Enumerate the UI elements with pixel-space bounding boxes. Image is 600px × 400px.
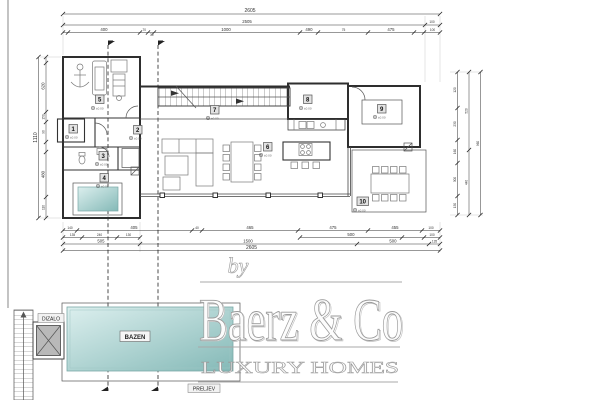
dim-top-total2: 2505 bbox=[242, 19, 252, 24]
stairs bbox=[158, 86, 290, 108]
dim-top-total: 2605 bbox=[244, 8, 255, 14]
svg-text:PRELJEV: PRELJEV bbox=[193, 387, 216, 393]
outdoor-stairs bbox=[14, 310, 33, 400]
dim-top-right: 100 bbox=[429, 20, 435, 24]
elevation-marker: ±0.00 bbox=[353, 208, 366, 212]
dim: 455 bbox=[391, 225, 399, 230]
floor-plan: 1 2 3 4 5 6 7 8 9 10 ±0.00 ±0.00 ±0.00 ±… bbox=[58, 57, 427, 218]
elevation-marker: ±0.00 bbox=[299, 106, 312, 110]
dining-table-indoor bbox=[223, 142, 261, 182]
svg-text:±0.00: ±0.00 bbox=[100, 162, 108, 166]
dim: 40 bbox=[195, 226, 199, 230]
dim: 120 bbox=[453, 87, 457, 93]
dim: 960 bbox=[476, 141, 480, 147]
dim: 500 bbox=[347, 232, 355, 237]
svg-text:±0.00: ±0.00 bbox=[211, 116, 219, 120]
room-label-8: 8 bbox=[304, 95, 313, 104]
elevation-marker: ±0.00 bbox=[373, 115, 386, 119]
dim: 440 bbox=[465, 180, 469, 186]
dim: 490 bbox=[305, 27, 313, 32]
dim: 300 bbox=[453, 177, 457, 183]
watermark: by Baerz & Co Baerz & Co LUXURY HOMES bbox=[198, 253, 404, 382]
elevation-marker: ±0.00 bbox=[206, 116, 219, 120]
dim: 505 bbox=[97, 239, 105, 244]
svg-text:±0.00: ±0.00 bbox=[378, 115, 386, 119]
dim: 475 bbox=[387, 27, 395, 32]
dim: 75 bbox=[342, 28, 346, 32]
sofa-group bbox=[162, 139, 213, 190]
svg-text:BAZEN: BAZEN bbox=[125, 335, 146, 341]
floor-plan-page: 2605 2505 100 400 70 30 1000 490 75 475 … bbox=[0, 0, 600, 400]
overflow-label: PRELJEV bbox=[188, 384, 220, 393]
room-label-6: 6 bbox=[264, 143, 273, 152]
dim: 30 bbox=[150, 33, 154, 37]
dim: 230 bbox=[453, 121, 457, 127]
svg-text:±0.00: ±0.00 bbox=[70, 135, 78, 139]
room-label-5: 5 bbox=[96, 95, 105, 104]
room-label-9: 9 bbox=[378, 105, 387, 114]
svg-text:±0.00: ±0.00 bbox=[304, 106, 312, 110]
dimension-lines-bottom: 140 405 40 465 475 455 100 135 240 130 5… bbox=[61, 225, 442, 253]
dim: 150 bbox=[453, 203, 457, 209]
elevation-marker: ±0.00 bbox=[259, 153, 272, 157]
svg-text:±0.00: ±0.00 bbox=[358, 208, 366, 212]
dim: 150 bbox=[42, 114, 46, 120]
dim: 465 bbox=[246, 225, 254, 230]
elevation-marker: ±0.00 bbox=[95, 162, 108, 166]
kitchen bbox=[283, 120, 345, 169]
dimension-lines-left: 1110 620 150 90 480 110 bbox=[33, 55, 48, 220]
room-label-1: 1 bbox=[69, 125, 78, 134]
dim: 110 bbox=[42, 205, 46, 210]
watermark-by: by bbox=[228, 253, 249, 278]
watermark-tagline: LUXURY HOMES bbox=[201, 358, 399, 377]
dim: 405 bbox=[130, 225, 138, 230]
dining-table-terrace bbox=[371, 167, 409, 202]
elevation-marker: ±0.00 bbox=[129, 136, 142, 140]
svg-text:±0.00: ±0.00 bbox=[101, 184, 109, 188]
dim: 480 bbox=[41, 170, 46, 178]
dim: 130 bbox=[126, 233, 132, 237]
dim: 475 bbox=[329, 225, 337, 230]
watermark-brand: Baerz & Co bbox=[199, 287, 403, 353]
dim: 100 bbox=[428, 226, 434, 230]
dim: 140 bbox=[67, 226, 73, 230]
gym-equipment bbox=[71, 60, 127, 101]
dim: 100 bbox=[429, 233, 435, 237]
floor-plan-drawing: 2605 2505 100 400 70 30 1000 490 75 475 … bbox=[0, 0, 600, 400]
dim-bottom-total: 2605 bbox=[246, 245, 257, 251]
dim: 500 bbox=[389, 239, 397, 244]
room-label-3: 3 bbox=[99, 152, 108, 161]
dim: 135 bbox=[432, 240, 438, 244]
dim: 135 bbox=[70, 233, 76, 237]
dim: 520 bbox=[465, 108, 469, 114]
room-label-4: 4 bbox=[100, 174, 109, 183]
dim: 90 bbox=[42, 130, 46, 134]
svg-text:±0.00: ±0.00 bbox=[96, 106, 104, 110]
extension-lines bbox=[40, 16, 483, 252]
dimension-lines-right: 120 230 160 300 150 520 440 960 bbox=[453, 70, 483, 217]
dim: 70 bbox=[143, 28, 147, 32]
svg-text:±0.00: ±0.00 bbox=[264, 153, 272, 157]
dim-left-total: 1110 bbox=[33, 132, 39, 143]
elevator-label: DIZALO bbox=[38, 314, 64, 323]
room-label-2: 2 bbox=[134, 126, 143, 135]
dim: 400 bbox=[100, 27, 108, 32]
dim: 240 bbox=[97, 233, 103, 237]
svg-text:±0.00: ±0.00 bbox=[134, 136, 142, 140]
dim: 100 bbox=[430, 28, 436, 32]
dim: 1500 bbox=[243, 239, 253, 244]
dimension-lines-top: 2605 2505 100 400 70 30 1000 490 75 475 … bbox=[61, 8, 442, 37]
svg-text:10: 10 bbox=[359, 200, 366, 206]
elevation-marker: ±0.00 bbox=[65, 135, 78, 139]
pool-label: BAZEN bbox=[120, 331, 150, 342]
dim: 1000 bbox=[221, 27, 231, 32]
elevation-marker: ±0.00 bbox=[96, 184, 109, 188]
dim: 620 bbox=[41, 82, 46, 90]
room-label-7: 7 bbox=[211, 106, 220, 115]
dim: 160 bbox=[453, 149, 457, 155]
room-label-10: 10 bbox=[357, 197, 369, 206]
svg-text:DIZALO: DIZALO bbox=[42, 316, 60, 322]
elevation-marker: ±0.00 bbox=[91, 106, 104, 110]
elevator-shaft bbox=[33, 322, 64, 359]
